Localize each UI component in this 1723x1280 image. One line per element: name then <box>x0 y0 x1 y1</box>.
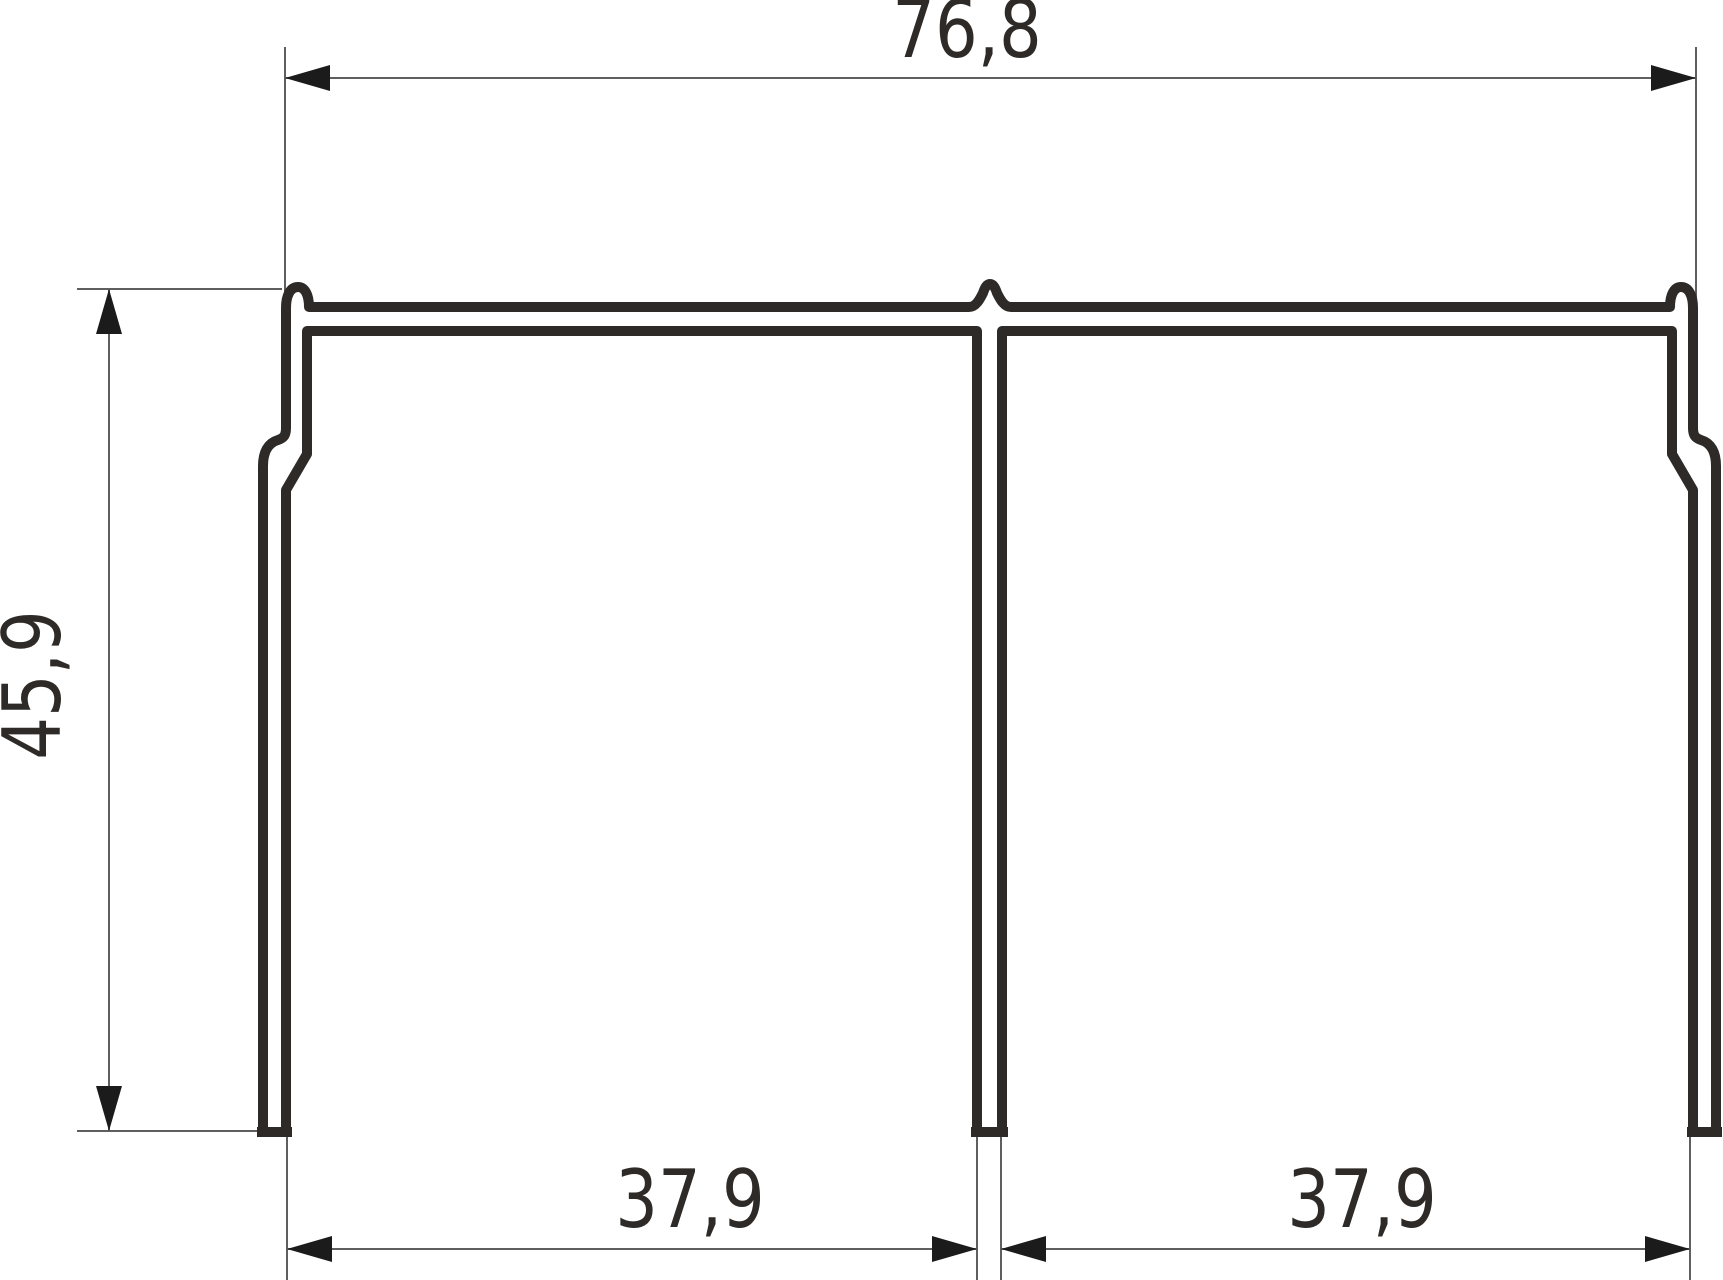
arrow-right-channel-left-icon <box>1001 1236 1046 1262</box>
profile-outer-contour <box>263 284 1716 1132</box>
arrow-height-bottom-icon <box>96 1086 122 1131</box>
dim-label-right-channel: 37,9 <box>1287 1153 1437 1246</box>
dimension-arrows <box>96 65 1696 1262</box>
profile-contours <box>257 284 1722 1132</box>
arrow-width-left-icon <box>285 65 330 91</box>
profile-inner-contour-left <box>286 331 977 1132</box>
dim-label-overall-height: 45,9 <box>0 610 79 760</box>
arrow-width-right-icon <box>1651 65 1696 91</box>
drawing-canvas: 76,8 45,9 37,9 37,9 <box>0 0 1723 1280</box>
arrow-left-channel-left-icon <box>287 1236 332 1262</box>
dimension-labels: 76,8 45,9 37,9 37,9 <box>0 0 1437 1246</box>
arrow-left-channel-right-icon <box>932 1236 977 1262</box>
arrow-height-top-icon <box>96 289 122 334</box>
dim-label-left-channel: 37,9 <box>615 1153 765 1246</box>
profile-drawing: 76,8 45,9 37,9 37,9 <box>0 0 1723 1280</box>
profile-inner-contour-right <box>1002 331 1693 1132</box>
arrow-right-channel-right-icon <box>1645 1236 1690 1262</box>
dim-label-overall-width: 76,8 <box>892 0 1042 76</box>
extension-lines <box>77 47 1696 1280</box>
dimension-lines <box>109 78 1696 1249</box>
